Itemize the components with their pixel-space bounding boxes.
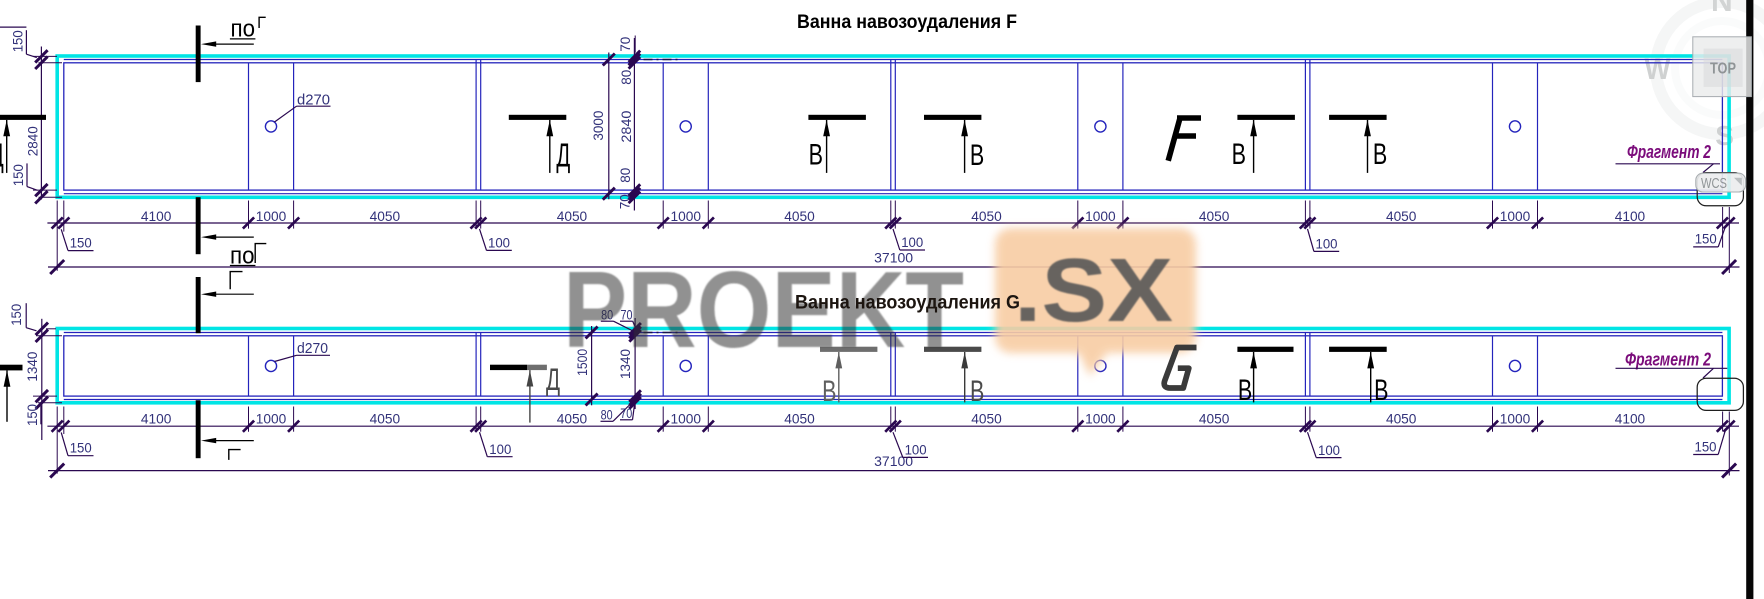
svg-text:80: 80 bbox=[618, 168, 634, 183]
svg-text:N: N bbox=[1711, 0, 1733, 18]
svg-text:4100: 4100 bbox=[1615, 412, 1646, 428]
svg-text:Д: Д bbox=[546, 362, 560, 397]
svg-text:4050: 4050 bbox=[370, 209, 401, 225]
svg-text:100: 100 bbox=[488, 236, 510, 252]
svg-text:2840: 2840 bbox=[619, 110, 635, 142]
svg-text:Фрагмент 2: Фрагмент 2 bbox=[1627, 142, 1711, 162]
svg-text:4100: 4100 bbox=[141, 209, 172, 225]
svg-text:150: 150 bbox=[1695, 232, 1717, 248]
svg-text:4050: 4050 bbox=[971, 209, 1002, 225]
svg-text:В: В bbox=[822, 376, 836, 408]
svg-text:150: 150 bbox=[11, 164, 27, 186]
svg-text:Фрагмент 2: Фрагмент 2 bbox=[1625, 349, 1711, 369]
svg-text:150: 150 bbox=[10, 30, 26, 52]
svg-text:Д: Д bbox=[0, 136, 4, 173]
svg-text:2840: 2840 bbox=[25, 126, 41, 156]
svg-text:WCS: WCS bbox=[1701, 176, 1727, 192]
svg-text:В: В bbox=[1373, 139, 1387, 171]
svg-text:Ванна навозоудаления F: Ванна навозоудаления F bbox=[797, 12, 1017, 33]
svg-text:1000: 1000 bbox=[256, 412, 287, 428]
svg-text:4100: 4100 bbox=[1615, 209, 1646, 225]
svg-text:70: 70 bbox=[618, 37, 634, 52]
svg-text:4050: 4050 bbox=[1199, 412, 1230, 428]
svg-text:4050: 4050 bbox=[370, 412, 401, 428]
svg-text:4050: 4050 bbox=[1386, 209, 1417, 225]
svg-text:TOP: TOP bbox=[1710, 61, 1736, 78]
svg-text:3000: 3000 bbox=[591, 110, 607, 140]
svg-text:Д: Д bbox=[556, 136, 570, 173]
svg-text:4050: 4050 bbox=[971, 412, 1002, 428]
svg-text:150: 150 bbox=[1695, 439, 1717, 455]
svg-text:70: 70 bbox=[617, 194, 633, 209]
svg-text:S: S bbox=[1715, 120, 1734, 151]
svg-text:Ванна навозоудаления G: Ванна навозоудаления G bbox=[795, 293, 1020, 314]
svg-text:В: В bbox=[1232, 139, 1246, 171]
svg-text:150: 150 bbox=[9, 304, 25, 326]
svg-text:В: В bbox=[809, 139, 823, 171]
svg-text:4050: 4050 bbox=[1386, 412, 1417, 428]
svg-text:100: 100 bbox=[905, 442, 927, 458]
svg-text:100: 100 bbox=[1316, 237, 1338, 253]
svg-text:4050: 4050 bbox=[557, 209, 588, 225]
svg-text:1000: 1000 bbox=[671, 412, 702, 428]
svg-text:1000: 1000 bbox=[671, 209, 702, 225]
svg-text:1340: 1340 bbox=[25, 351, 41, 381]
svg-text:1000: 1000 bbox=[1085, 209, 1116, 225]
svg-text:100: 100 bbox=[1318, 443, 1340, 459]
svg-text:4050: 4050 bbox=[1199, 209, 1230, 225]
svg-text:В: В bbox=[1238, 375, 1252, 407]
svg-text:80: 80 bbox=[619, 70, 635, 85]
svg-text:150: 150 bbox=[25, 404, 41, 426]
svg-text:100: 100 bbox=[489, 442, 511, 458]
svg-text:150: 150 bbox=[70, 441, 92, 457]
svg-text:4100: 4100 bbox=[141, 412, 172, 428]
svg-text:1000: 1000 bbox=[1085, 412, 1116, 428]
svg-text:.SX: .SX bbox=[1014, 241, 1173, 341]
svg-text:4050: 4050 bbox=[784, 209, 815, 225]
svg-text:4050: 4050 bbox=[557, 412, 588, 428]
svg-text:В: В bbox=[970, 376, 984, 408]
svg-text:В: В bbox=[1374, 375, 1388, 407]
svg-text:150: 150 bbox=[70, 236, 92, 252]
svg-text:W: W bbox=[1645, 53, 1672, 86]
svg-text:1000: 1000 bbox=[1500, 209, 1531, 225]
svg-text:1000: 1000 bbox=[1500, 412, 1531, 428]
svg-text:d270: d270 bbox=[297, 340, 328, 357]
svg-text:1000: 1000 bbox=[256, 209, 287, 225]
svg-text:В: В bbox=[970, 140, 984, 172]
svg-text:4050: 4050 bbox=[784, 412, 815, 428]
